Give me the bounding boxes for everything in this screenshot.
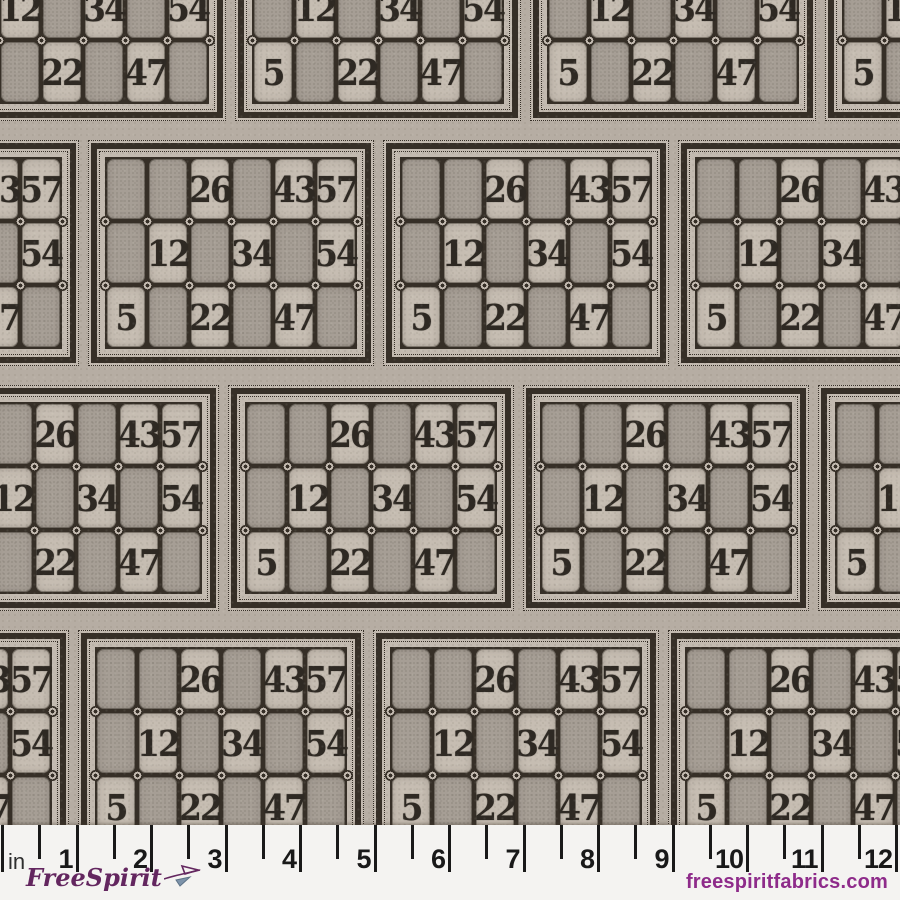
card-cell (247, 404, 285, 464)
card-cell: 22 (36, 532, 74, 592)
card-inner-border: 26435712345452247 (89, 641, 353, 825)
grid-dot-ornament (619, 461, 630, 472)
card-cell: 43 (865, 159, 900, 219)
card-cell: 47 (265, 777, 303, 825)
card-number: 47 (273, 296, 315, 338)
card-cell (85, 42, 123, 102)
card-cell: 34 (223, 713, 261, 773)
card-cell: 22 (626, 532, 664, 592)
ruler-major-tick (299, 825, 302, 872)
grid-dot-ornament (415, 35, 426, 46)
grid-dot-ornament (373, 35, 384, 46)
grid-dot-ornament (15, 280, 26, 291)
card-cell: 43 (415, 404, 453, 464)
grid-dot-ornament (408, 525, 419, 536)
card-cell (759, 42, 797, 102)
card-number: 34 (221, 722, 263, 764)
grid-dot-ornament (647, 280, 658, 291)
grid-dot-ornament (142, 216, 153, 227)
card-cell: 43 (570, 159, 608, 219)
card-cell (97, 713, 135, 773)
card-number: 54 (315, 232, 357, 274)
card-cell: 43 (710, 404, 748, 464)
card-frame: 26435712345452247 (821, 388, 900, 608)
card-cell (739, 159, 777, 219)
card-cell: 5 (97, 777, 135, 825)
card-number: 54 (610, 232, 652, 274)
card-grid: 26435712345452247 (107, 159, 355, 347)
grid-dot-ornament (879, 35, 890, 46)
card-cell (752, 532, 790, 592)
grid-dot-ornament (848, 706, 859, 717)
card-number: 5 (853, 51, 874, 93)
card-cell (107, 159, 145, 219)
card-cell: 43 (0, 159, 18, 219)
card-cell (823, 159, 861, 219)
grid-dot-ornament (300, 706, 311, 717)
grid-dot-ornament (197, 525, 208, 536)
card-cell: 34 (380, 0, 418, 38)
grid-dot-ornament (542, 35, 553, 46)
lotto-card: 26435712345452247 (825, 0, 900, 121)
grid-dot-ornament (680, 706, 691, 717)
grid-dot-ornament (637, 706, 648, 717)
grid-dot-ornament (427, 770, 438, 781)
card-cell: 43 (560, 649, 598, 709)
card-frame: 26435712345452247 (0, 143, 76, 363)
grid-dot-ornament (535, 461, 546, 472)
card-cell: 26 (476, 649, 514, 709)
card-number: 47 (853, 786, 895, 825)
grid-dot-ornament (216, 770, 227, 781)
ruler-major-tick (225, 825, 228, 872)
grid-dot-ornament (553, 770, 564, 781)
grid-dot-ornament (342, 770, 353, 781)
card-number: 5 (116, 296, 137, 338)
card-cell (127, 0, 165, 38)
card-cell (697, 223, 735, 283)
card-cell (289, 532, 327, 592)
card-number: 34 (666, 477, 708, 519)
card-frame: 26435712345452247 (81, 633, 361, 825)
card-frame: 26435712345452247 (376, 633, 656, 825)
card-grid: 26435712345452247 (402, 159, 650, 347)
grid-dot-ornament (366, 525, 377, 536)
card-cell (457, 532, 495, 592)
card-frame: 26435712345452247 (533, 0, 813, 118)
grid-dot-ornament (352, 280, 363, 291)
card-cell: 5 (542, 532, 580, 592)
card-number: 47 (715, 51, 757, 93)
card-number: 57 (315, 168, 357, 210)
fabric-product-image: 2643571234545224726435712345452247264357… (0, 0, 900, 900)
grid-dot-ornament (5, 706, 16, 717)
card-cell (0, 532, 32, 592)
card-number: 57 (750, 413, 792, 455)
card-cell: 34 (518, 713, 556, 773)
card-cell (181, 713, 219, 773)
grid-dot-ornament (535, 525, 546, 536)
card-frame: 26435712345452247 (0, 633, 66, 825)
grid-dot-ornament (457, 35, 468, 46)
grid-dot-ornament (764, 706, 775, 717)
card-cell: 12 (729, 713, 767, 773)
card-number: 57 (305, 658, 347, 700)
card-number: 22 (631, 51, 673, 93)
card-grid: 26435712345452247 (687, 649, 900, 825)
grid-dot-ornament (0, 35, 5, 46)
card-cell: 43 (855, 649, 893, 709)
ruler-major-tick (597, 825, 600, 872)
card-number: 54 (757, 0, 799, 29)
lotto-card: 26435712345452247 (373, 630, 659, 825)
ruler-major-tick (895, 825, 898, 872)
card-grid: 26435712345452247 (0, 649, 50, 825)
card-cell (12, 777, 50, 825)
card-inner-border: 26435712345452247 (836, 0, 900, 110)
card-number: 47 (558, 786, 600, 825)
grid-dot-ornament (174, 770, 185, 781)
card-cell (0, 223, 18, 283)
card-number: 22 (41, 51, 83, 93)
card-number: 26 (34, 413, 76, 455)
card-cell: 12 (584, 468, 622, 528)
card-cell: 57 (752, 404, 790, 464)
freespirit-logo: FreeSpirit (26, 862, 204, 892)
grid-dot-ornament (71, 525, 82, 536)
card-cell: 57 (22, 159, 60, 219)
grid-dot-ornament (752, 35, 763, 46)
card-cell: 34 (813, 713, 851, 773)
card-cell: 47 (717, 42, 755, 102)
card-number: 34 (231, 232, 273, 274)
grid-dot-ornament (437, 280, 448, 291)
card-cell: 12 (149, 223, 187, 283)
ruler-major-tick (672, 825, 675, 872)
grid-dot-ornament (174, 706, 185, 717)
card-cell: 34 (233, 223, 271, 283)
card-number: 34 (378, 0, 420, 29)
lotto-card: 26435712345452247 (235, 0, 521, 121)
grid-dot-ornament (637, 770, 648, 781)
card-cell (338, 0, 376, 38)
kite-flourish-icon (164, 862, 204, 892)
card-number: 5 (551, 541, 572, 583)
card-grid: 26435712345452247 (392, 649, 640, 825)
card-cell: 12 (886, 0, 900, 38)
card-cell: 47 (865, 287, 900, 347)
grid-dot-ornament (774, 280, 785, 291)
card-cell (697, 159, 735, 219)
grid-dot-ornament (197, 461, 208, 472)
card-inner-border: 26435712345452247 (0, 641, 58, 825)
card-cell: 12 (739, 223, 777, 283)
card-cell (149, 287, 187, 347)
card-cell (296, 42, 334, 102)
card-number: 54 (750, 477, 792, 519)
card-cell: 22 (771, 777, 809, 825)
grid-dot-ornament (240, 461, 251, 472)
card-number: 34 (371, 477, 413, 519)
card-cell: 12 (289, 468, 327, 528)
card-inner-border: 26435712345452247 (99, 151, 363, 355)
grid-dot-ornament (385, 770, 396, 781)
card-cell: 22 (338, 42, 376, 102)
card-number: 5 (558, 51, 579, 93)
grid-dot-ornament (408, 461, 419, 472)
grid-dot-ornament (240, 525, 251, 536)
card-number: 12 (432, 722, 474, 764)
card-cell: 5 (254, 42, 292, 102)
unit-label: in (8, 849, 25, 875)
grid-dot-ornament (745, 525, 756, 536)
grid-dot-ornament (577, 525, 588, 536)
card-number: 43 (118, 413, 160, 455)
card-frame: 26435712345452247 (386, 143, 666, 363)
card-number: 12 (294, 0, 336, 29)
card-cell (570, 223, 608, 283)
fabric-swatch: 2643571234545224726435712345452247264357… (0, 0, 900, 825)
grid-dot-ornament (794, 35, 805, 46)
card-number: 5 (706, 296, 727, 338)
card-cell (886, 42, 900, 102)
card-number: 26 (179, 658, 221, 700)
card-number: 43 (0, 168, 20, 210)
card-cell (717, 0, 755, 38)
card-cell: 54 (317, 223, 355, 283)
card-cell: 54 (169, 0, 207, 38)
grid-dot-ornament (626, 35, 637, 46)
card-inner-border: 26435712345452247 (394, 151, 658, 355)
card-inner-border: 26435712345452247 (0, 0, 215, 110)
grid-dot-ornament (100, 216, 111, 227)
card-number: 34 (526, 232, 568, 274)
card-number: 5 (256, 541, 277, 583)
card-cell (486, 223, 524, 283)
grid-dot-ornament (352, 216, 363, 227)
card-number: 47 (420, 51, 462, 93)
card-cell (837, 404, 875, 464)
card-number: 54 (10, 722, 52, 764)
card-number: 54 (600, 722, 642, 764)
grid-dot-ornament (395, 216, 406, 227)
card-cell: 22 (633, 42, 671, 102)
inch-label: 7 (460, 844, 520, 875)
card-number: 57 (20, 168, 62, 210)
grid-dot-ornament (605, 216, 616, 227)
lotto-card: 26435712345452247 (383, 140, 669, 366)
card-cell (865, 223, 900, 283)
grid-dot-ornament (342, 706, 353, 717)
grid-dot-ornament (787, 461, 798, 472)
card-inner-border: 26435712345452247 (246, 0, 510, 110)
lotto-card: 26435712345452247 (0, 630, 69, 825)
card-number: 26 (474, 658, 516, 700)
card-number: 43 (0, 658, 10, 700)
card-number: 12 (0, 0, 41, 29)
card-inner-border: 26435712345452247 (0, 151, 68, 355)
grid-dot-ornament (132, 706, 143, 717)
card-cell: 26 (781, 159, 819, 219)
card-cell (739, 287, 777, 347)
grid-dot-ornament (142, 280, 153, 291)
card-cell (402, 223, 440, 283)
inch-label: 6 (385, 844, 445, 875)
grid-dot-ornament (661, 461, 672, 472)
card-number: 54 (305, 722, 347, 764)
grid-dot-ornament (521, 216, 532, 227)
card-cell (823, 287, 861, 347)
grid-dot-ornament (732, 280, 743, 291)
card-cell: 22 (191, 287, 229, 347)
grid-dot-ornament (113, 525, 124, 536)
grid-dot-ornament (553, 706, 564, 717)
grid-dot-ornament (247, 35, 258, 46)
card-cell: 22 (781, 287, 819, 347)
card-frame: 26435712345452247 (238, 0, 518, 118)
grid-dot-ornament (324, 525, 335, 536)
card-cell: 54 (12, 713, 50, 773)
card-grid: 26435712345452247 (0, 0, 207, 102)
inch-label: 9 (609, 844, 669, 875)
grid-dot-ornament (5, 770, 16, 781)
grid-dot-ornament (78, 35, 89, 46)
card-cell (392, 649, 430, 709)
card-cell (422, 0, 460, 38)
grid-dot-ornament (268, 216, 279, 227)
grid-dot-ornament (395, 280, 406, 291)
lotto-card: 26435712345452247 (678, 140, 900, 366)
grid-dot-ornament (858, 216, 869, 227)
ruler-major-tick (746, 825, 749, 872)
card-number: 34 (821, 232, 863, 274)
card-cell: 26 (331, 404, 369, 464)
card-number: 12 (877, 477, 900, 519)
card-cell: 5 (392, 777, 430, 825)
grid-dot-ornament (848, 770, 859, 781)
ruler-major-tick (1, 825, 4, 872)
grid-dot-ornament (816, 216, 827, 227)
card-grid: 26435712345452247 (0, 404, 200, 592)
card-inner-border: 26435712345452247 (384, 641, 648, 825)
grid-dot-ornament (858, 280, 869, 291)
card-cell (518, 777, 556, 825)
grid-dot-ornament (100, 280, 111, 291)
lotto-card: 26435712345452247 (0, 0, 226, 121)
card-cell (162, 532, 200, 592)
card-frame: 26435712345452247 (681, 143, 900, 363)
card-cell: 43 (0, 649, 8, 709)
card-cell (0, 713, 8, 773)
card-number: 5 (263, 51, 284, 93)
grid-dot-ornament (745, 461, 756, 472)
card-cell (331, 468, 369, 528)
card-cell (855, 713, 893, 773)
grid-dot-ornament (680, 770, 691, 781)
card-cell: 54 (22, 223, 60, 283)
card-cell (233, 287, 271, 347)
card-cell: 34 (668, 468, 706, 528)
card-cell (612, 287, 650, 347)
card-cell (444, 287, 482, 347)
card-cell: 5 (402, 287, 440, 347)
grid-dot-ornament (258, 770, 269, 781)
grid-dot-ornament (647, 216, 658, 227)
grid-dot-ornament (595, 706, 606, 717)
card-cell (107, 223, 145, 283)
grid-dot-ornament (120, 35, 131, 46)
lotto-card: 26435712345452247 (523, 385, 809, 611)
grid-dot-ornament (830, 525, 841, 536)
card-cell: 5 (844, 42, 882, 102)
card-cell (78, 404, 116, 464)
measurement-ruler: 123456789101112 in FreeSpirit freespirit… (0, 825, 900, 900)
grid-dot-ornament (90, 706, 101, 717)
card-cell: 26 (486, 159, 524, 219)
grid-dot-ornament (732, 216, 743, 227)
card-cell: 57 (602, 649, 640, 709)
card-cell: 47 (710, 532, 748, 592)
card-cell (710, 468, 748, 528)
card-cell: 57 (307, 649, 345, 709)
card-cell: 57 (162, 404, 200, 464)
card-inner-border: 26435712345452247 (239, 396, 503, 600)
card-cell: 12 (0, 468, 32, 528)
card-cell: 12 (879, 468, 900, 528)
lotto-card: 26435712345452247 (78, 630, 364, 825)
card-number: 54 (462, 0, 504, 29)
grid-dot-ornament (47, 706, 58, 717)
card-cell (729, 777, 767, 825)
card-number: 47 (413, 541, 455, 583)
grid-dot-ornament (113, 461, 124, 472)
card-cell (434, 777, 472, 825)
card-cell (687, 649, 725, 709)
card-cell: 47 (855, 777, 893, 825)
ruler-major-tick (448, 825, 451, 872)
card-cell: 12 (591, 0, 629, 38)
card-cell (837, 468, 875, 528)
card-cell (781, 223, 819, 283)
grid-dot-ornament (690, 280, 701, 291)
grid-dot-ornament (258, 706, 269, 717)
grid-dot-ornament (690, 216, 701, 227)
card-cell: 12 (444, 223, 482, 283)
card-cell (879, 404, 900, 464)
grid-dot-ornament (872, 525, 883, 536)
lotto-card: 26435712345452247 (88, 140, 374, 366)
grid-dot-ornament (499, 35, 510, 46)
card-number: 34 (76, 477, 118, 519)
grid-dot-ornament (331, 35, 342, 46)
card-cell: 34 (675, 0, 713, 38)
grid-dot-ornament (492, 461, 503, 472)
grid-dot-ornament (450, 461, 461, 472)
grid-dot-ornament (479, 280, 490, 291)
card-number: 22 (769, 786, 811, 825)
card-number: 47 (568, 296, 610, 338)
grid-dot-ornament (162, 35, 173, 46)
grid-dot-ornament (806, 706, 817, 717)
inch-label: 8 (534, 844, 594, 875)
grid-dot-ornament (577, 461, 588, 472)
card-frame: 26435712345452247 (231, 388, 511, 608)
grid-dot-ornament (890, 770, 900, 781)
card-cell: 47 (415, 532, 453, 592)
card-cell: 57 (317, 159, 355, 219)
card-cell (528, 159, 566, 219)
card-cell: 12 (139, 713, 177, 773)
